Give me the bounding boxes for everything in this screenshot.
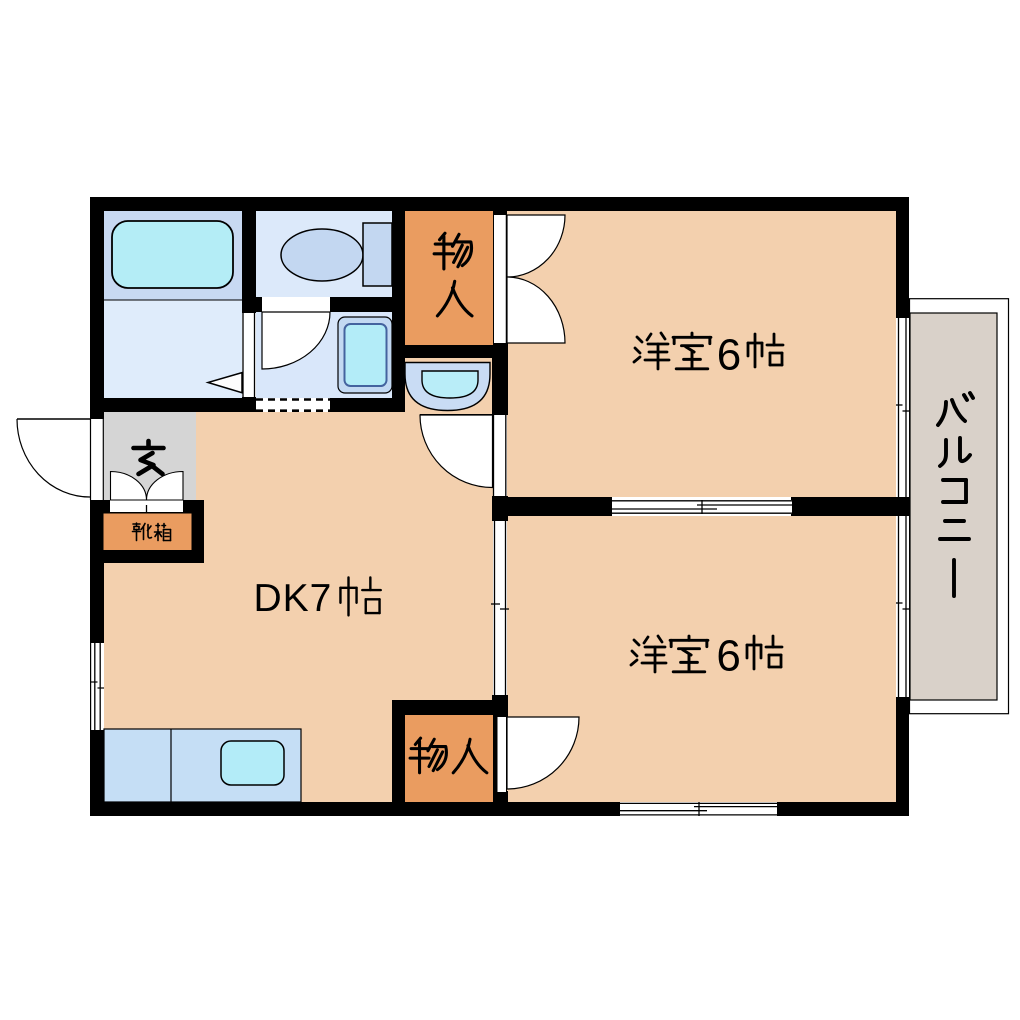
svg-text:6: 6 [716, 632, 740, 681]
svg-text:6: 6 [717, 330, 741, 379]
svg-text:DK7: DK7 [254, 577, 333, 620]
